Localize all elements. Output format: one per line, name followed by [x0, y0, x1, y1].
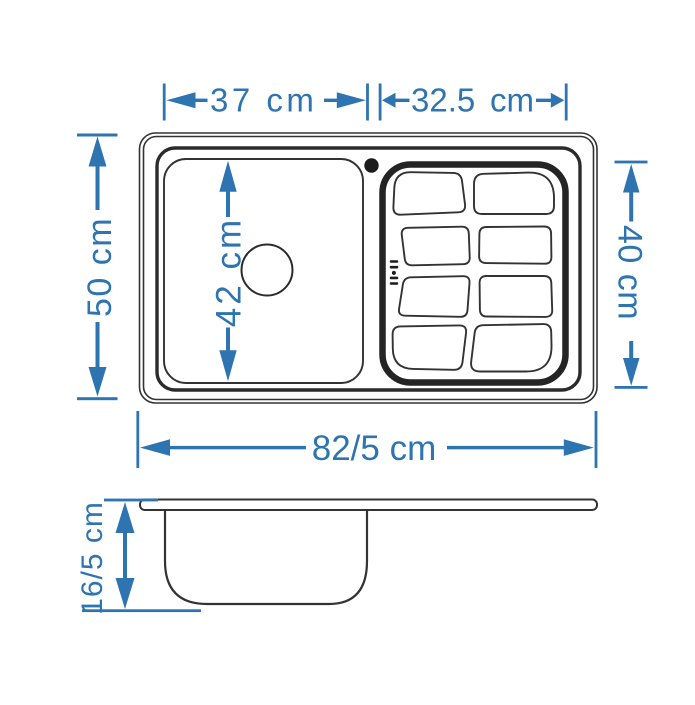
svg-text:cm: cm [490, 82, 534, 119]
svg-text:40 cm: 40 cm [611, 225, 649, 320]
svg-text:42 cm: 42 cm [209, 217, 248, 327]
svg-text:37 cm: 37 cm [210, 82, 317, 119]
svg-text:82/5 cm: 82/5 cm [312, 429, 437, 468]
svg-text:50 cm: 50 cm [81, 217, 119, 317]
svg-text:32.5: 32.5 [411, 82, 475, 119]
svg-text:16/5 cm: 16/5 cm [76, 501, 109, 615]
